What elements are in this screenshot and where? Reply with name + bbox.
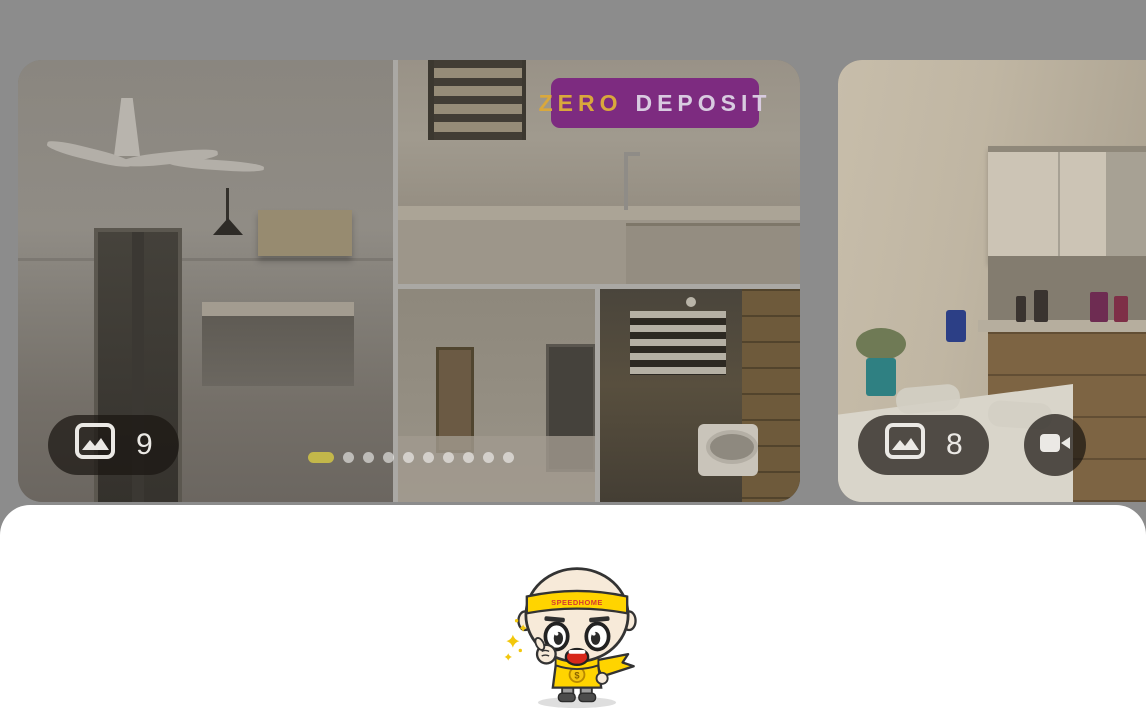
photo-count-value: 9 [136,428,153,462]
sink-faucet [624,152,628,210]
photo-count-value: 8 [946,428,963,462]
photo-count-badge: 8 [858,415,989,475]
table-plant [856,328,906,360]
photo-empty-room[interactable] [398,289,595,502]
zero-deposit-badge-zero: ZERO [539,90,623,117]
pendant-lamp [226,188,229,220]
carousel-dot [423,452,434,463]
next-listing-card[interactable]: 8 [838,60,1146,502]
image-icon [884,422,926,468]
carousel-dot [363,452,374,463]
video-tour-button[interactable] [1024,414,1086,476]
carousel-dot [483,452,494,463]
mascot-headband-text: SPEEDHOME [551,598,603,607]
bottom-sheet: $ SPEEDHOME [0,505,1146,716]
carousel-dots [308,452,514,463]
louvered-window [630,311,726,375]
kitchen-counter [202,302,354,316]
carousel-dot-active [308,452,334,463]
carousel-dot [463,452,474,463]
carousel-dot [403,452,414,463]
ceiling-fan [114,98,140,156]
photo-bathroom[interactable] [600,289,800,502]
video-camera-icon [1038,430,1072,461]
zero-deposit-badge: ZERO DEPOSIT [551,78,759,128]
carousel-dot [503,452,514,463]
image-icon [74,422,116,468]
carousel-dot [383,452,394,463]
listing-card-photo-collage[interactable]: ZERO DEPOSIT 9 [18,60,800,502]
window-grille [428,60,526,140]
wash-basin [698,424,758,476]
zero-deposit-badge-deposit: DEPOSIT [635,90,771,117]
svg-text:$: $ [574,670,580,680]
carousel-dot [443,452,454,463]
photo-count-badge: 9 [48,415,179,475]
wall-cabinet [258,210,352,256]
upper-cabinets [988,146,1146,262]
blue-cup [946,310,966,342]
carousel-dot [343,452,354,463]
speedhome-mascot: $ SPEEDHOME [498,563,656,713]
